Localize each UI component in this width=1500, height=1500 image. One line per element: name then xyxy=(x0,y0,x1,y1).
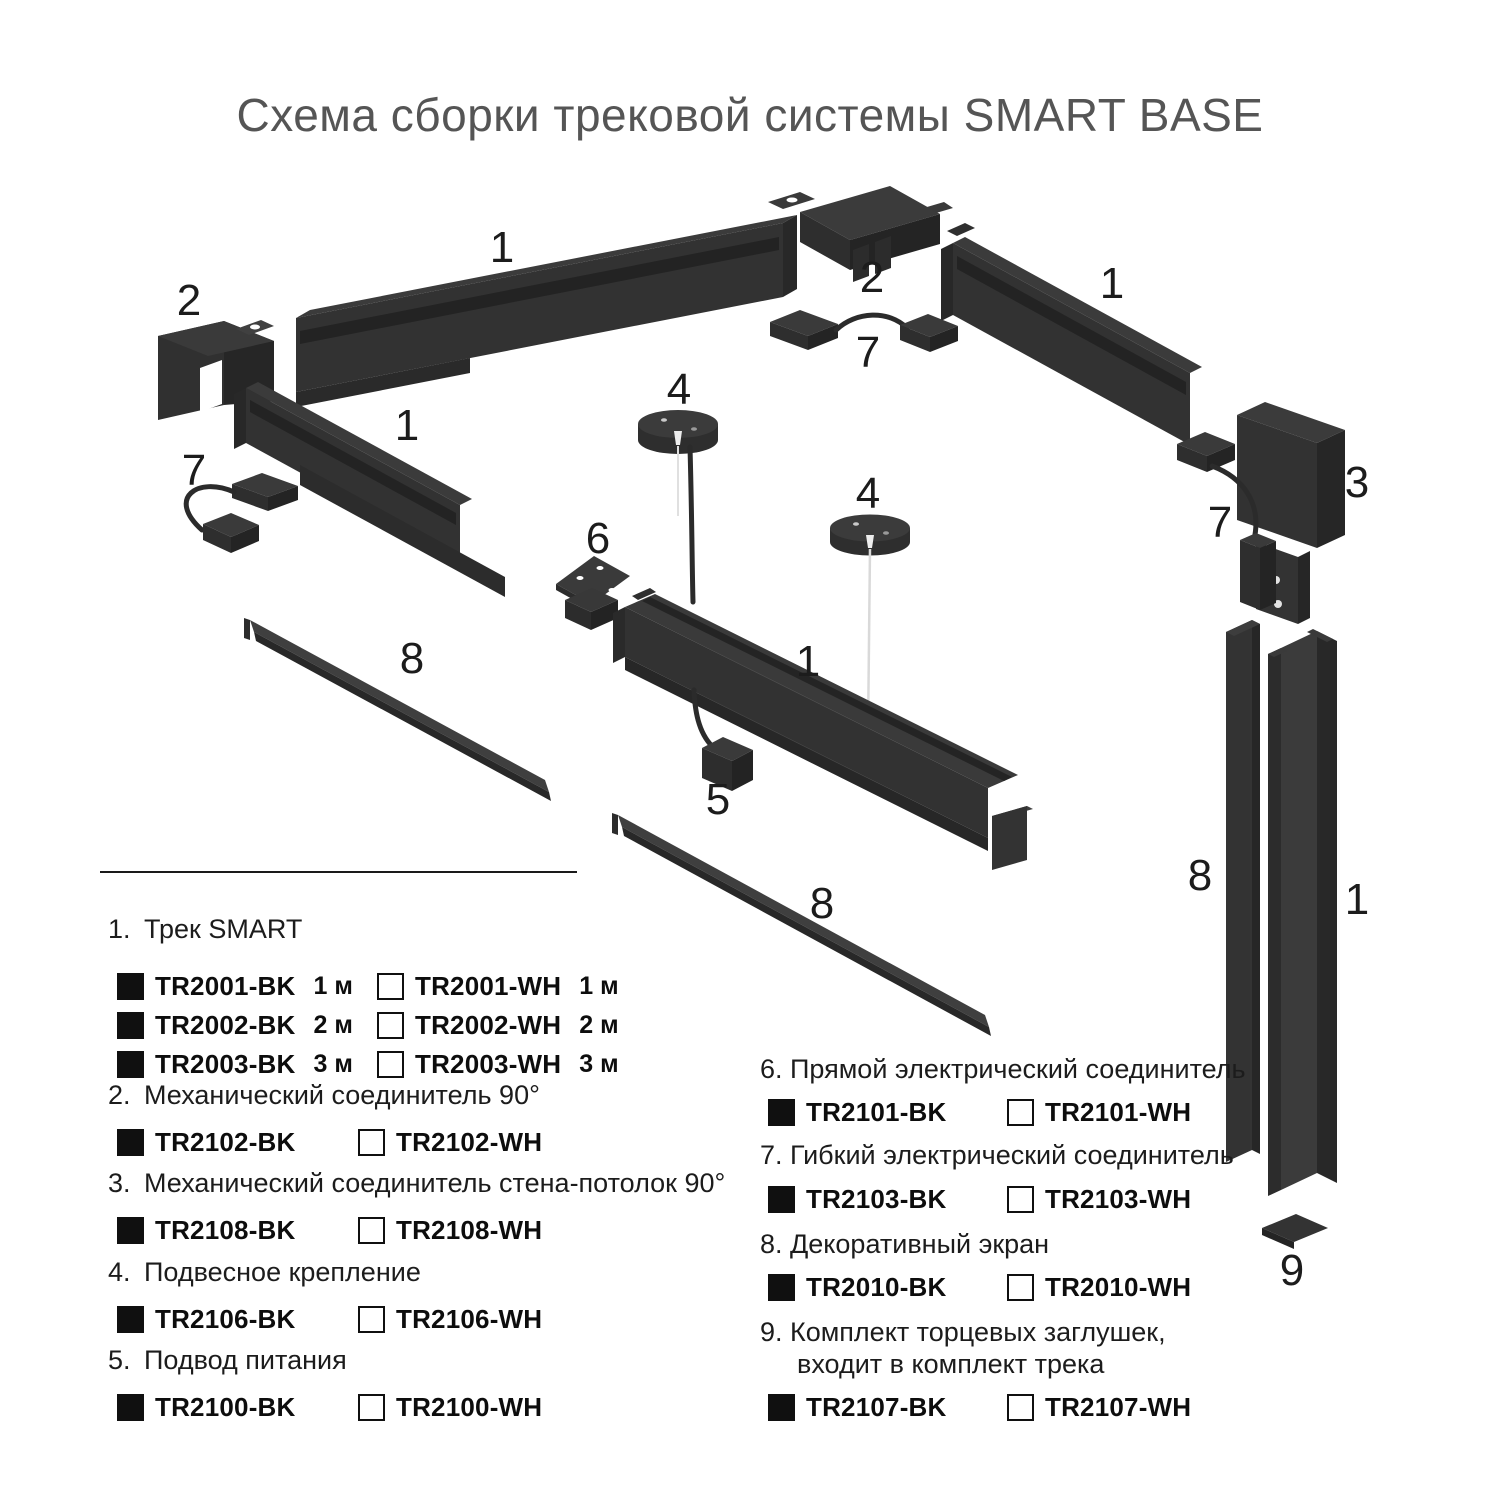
legend-item-tr2103-bk: TR2103-BK xyxy=(768,1182,947,1216)
section-number: 1. xyxy=(108,914,144,945)
black-swatch xyxy=(768,1099,795,1126)
legend-item-tr2101-bk: TR2101-BK xyxy=(768,1095,947,1129)
legend-item-tr2102-wh: TR2102-WH xyxy=(358,1125,542,1159)
callout-end-cap: 9 xyxy=(1280,1246,1304,1295)
black-swatch xyxy=(117,1129,144,1156)
part-size: 3 м xyxy=(314,1050,353,1079)
legend-section-3-heading: 3.Механический соединитель стена-потолок… xyxy=(108,1168,725,1199)
section-number: 5. xyxy=(108,1345,144,1376)
legend-separator xyxy=(100,871,577,873)
part-code: TR2106-BK xyxy=(155,1304,296,1335)
part-code: TR2010-WH xyxy=(1045,1272,1191,1303)
section-name: Подвесное крепление xyxy=(144,1257,421,1287)
part-code: TR2100-BK xyxy=(155,1392,296,1423)
legend-section-9-heading: 9.Комплект торцевых заглушек, xyxy=(760,1317,1166,1348)
black-swatch xyxy=(117,1394,144,1421)
white-swatch xyxy=(1007,1099,1034,1126)
callout-flex-top: 7 xyxy=(856,328,880,377)
callout-straight-connector: 6 xyxy=(586,514,610,563)
part-code: TR2101-BK xyxy=(806,1097,947,1128)
white-swatch xyxy=(1007,1186,1034,1213)
part-code: TR2100-WH xyxy=(396,1392,542,1423)
callout-track-f: 1 xyxy=(395,401,419,450)
section-number: 7. xyxy=(760,1140,790,1171)
part-size: 3 м xyxy=(579,1050,618,1079)
black-swatch xyxy=(117,1306,144,1333)
part-code: TR2001-WH xyxy=(415,971,561,1002)
part-code: TR2102-WH xyxy=(396,1127,542,1158)
section-number: 9. xyxy=(760,1317,790,1348)
white-swatch xyxy=(1007,1274,1034,1301)
part-code: TR2106-WH xyxy=(396,1304,542,1335)
legend-item-tr2003-wh: TR2003-WH 3 м xyxy=(377,1047,619,1081)
section-name: Механический соединитель стена-потолок 9… xyxy=(144,1168,725,1198)
legend-item-tr2001-wh: TR2001-WH 1 м xyxy=(377,969,619,1003)
part-screen-center xyxy=(612,813,991,1036)
page: Схема сборки трековой системы SMART BASE xyxy=(0,0,1500,1500)
callout-track-s: 1 xyxy=(1345,875,1369,924)
part-code: TR2102-BK xyxy=(155,1127,296,1158)
section-name: Декоративный экран xyxy=(790,1229,1049,1259)
callout-flex-right: 7 xyxy=(1208,498,1232,547)
part-track-smart-center xyxy=(613,588,1018,851)
callout-power-feed: 5 xyxy=(706,775,730,824)
legend-item-tr2106-bk: TR2106-BK xyxy=(117,1302,296,1336)
legend-item-tr2103-wh: TR2103-WH xyxy=(1007,1182,1191,1216)
part-code: TR2003-BK xyxy=(155,1049,296,1080)
black-swatch xyxy=(117,1217,144,1244)
section-name: Прямой электрический соединитель xyxy=(790,1054,1246,1084)
callout-track-m: 1 xyxy=(796,637,820,686)
legend-item-tr2101-wh: TR2101-WH xyxy=(1007,1095,1191,1129)
legend-item-tr2002-wh: TR2002-WH 2 м xyxy=(377,1008,619,1042)
part-track-smart-top-left xyxy=(296,215,797,407)
legend-section-1-heading: 1.Трек SMART xyxy=(108,914,302,945)
legend-item-tr2003-bk: TR2003-BK 3 м xyxy=(117,1047,353,1081)
white-swatch xyxy=(377,973,404,1000)
part-code: TR2003-WH xyxy=(415,1049,561,1080)
section-number: 8. xyxy=(760,1229,790,1260)
legend-section-5-heading: 5.Подвод питания xyxy=(108,1345,347,1376)
part-code: TR2108-WH xyxy=(396,1215,542,1246)
section-name: Комплект торцевых заглушек, xyxy=(790,1317,1166,1347)
legend-section-8-heading: 8.Декоративный экран xyxy=(760,1229,1049,1260)
section-name: Подвод питания xyxy=(144,1345,347,1375)
legend-section-6-heading: 6.Прямой электрический соединитель xyxy=(760,1054,1246,1085)
callout-pendant-1: 4 xyxy=(667,365,691,414)
part-code: TR2107-WH xyxy=(1045,1392,1191,1423)
callout-corner-right: 2 xyxy=(860,253,884,302)
black-swatch xyxy=(768,1186,795,1213)
part-code: TR2103-WH xyxy=(1045,1184,1191,1215)
part-end-cap xyxy=(1262,1214,1328,1249)
black-swatch xyxy=(117,1012,144,1039)
callout-track-d: 1 xyxy=(1100,259,1124,308)
legend-section-4-heading: 4.Подвесное крепление xyxy=(108,1257,421,1288)
white-swatch xyxy=(358,1394,385,1421)
callout-flex-left: 7 xyxy=(182,446,206,495)
section-name: Трек SMART xyxy=(144,914,302,944)
section-number: 4. xyxy=(108,1257,144,1288)
section-number: 3. xyxy=(108,1168,144,1199)
part-size: 2 м xyxy=(314,1011,353,1040)
legend-item-tr2001-bk: TR2001-BK 1 м xyxy=(117,969,353,1003)
callout-pendant-2: 4 xyxy=(856,469,880,518)
part-code: TR2108-BK xyxy=(155,1215,296,1246)
part-track-end-section xyxy=(992,806,1033,870)
legend-item-tr2107-wh: TR2107-WH xyxy=(1007,1390,1191,1424)
black-swatch xyxy=(117,1051,144,1078)
part-code: TR2107-BK xyxy=(806,1392,947,1423)
section-name: Механический соединитель 90° xyxy=(144,1080,540,1110)
callout-screen-center: 8 xyxy=(810,879,834,928)
legend-item-tr2100-bk: TR2100-BK xyxy=(117,1390,296,1424)
callout-wall-ceiling: 3 xyxy=(1345,458,1369,507)
legend-section-7-heading: 7.Гибкий электрический соединитель xyxy=(760,1140,1234,1171)
section-name: Гибкий электрический соединитель xyxy=(790,1140,1234,1170)
part-track-smart-right-vertical xyxy=(1268,629,1337,1196)
legend-item-tr2106-wh: TR2106-WH xyxy=(358,1302,542,1336)
legend-item-tr2108-wh: TR2108-WH xyxy=(358,1213,542,1247)
part-size: 1 м xyxy=(314,972,353,1001)
white-swatch xyxy=(358,1217,385,1244)
part-size: 1 м xyxy=(579,972,618,1001)
part-code: TR2010-BK xyxy=(806,1272,947,1303)
legend-item-tr2002-bk: TR2002-BK 2 м xyxy=(117,1008,353,1042)
legend-item-tr2010-bk: TR2010-BK xyxy=(768,1270,947,1304)
part-code: TR2002-WH xyxy=(415,1010,561,1041)
part-screen-left xyxy=(244,618,551,801)
part-size: 2 м xyxy=(579,1011,618,1040)
white-swatch xyxy=(358,1306,385,1333)
section-number: 2. xyxy=(108,1080,144,1111)
legend-section-9-heading-line2: входит в комплект трека xyxy=(797,1349,1104,1380)
part-track-smart-top-right xyxy=(941,223,1202,445)
section-number: 6. xyxy=(760,1054,790,1085)
part-code: TR2101-WH xyxy=(1045,1097,1191,1128)
part-code: TR2002-BK xyxy=(155,1010,296,1041)
part-code: TR2001-BK xyxy=(155,971,296,1002)
legend-item-tr2010-wh: TR2010-WH xyxy=(1007,1270,1191,1304)
callout-corner-left: 2 xyxy=(177,276,201,325)
legend-item-tr2108-bk: TR2108-BK xyxy=(117,1213,296,1247)
callout-screen-left: 8 xyxy=(400,634,424,683)
callout-screen-right: 8 xyxy=(1188,851,1212,900)
callout-track-a: 1 xyxy=(490,223,514,272)
white-swatch xyxy=(1007,1394,1034,1421)
black-swatch xyxy=(117,973,144,1000)
legend-item-tr2100-wh: TR2100-WH xyxy=(358,1390,542,1424)
legend-section-2-heading: 2.Механический соединитель 90° xyxy=(108,1080,540,1111)
white-swatch xyxy=(377,1051,404,1078)
black-swatch xyxy=(768,1274,795,1301)
legend-item-tr2102-bk: TR2102-BK xyxy=(117,1125,296,1159)
white-swatch xyxy=(377,1012,404,1039)
legend-item-tr2107-bk: TR2107-BK xyxy=(768,1390,947,1424)
white-swatch xyxy=(358,1129,385,1156)
black-swatch xyxy=(768,1394,795,1421)
part-code: TR2103-BK xyxy=(806,1184,947,1215)
